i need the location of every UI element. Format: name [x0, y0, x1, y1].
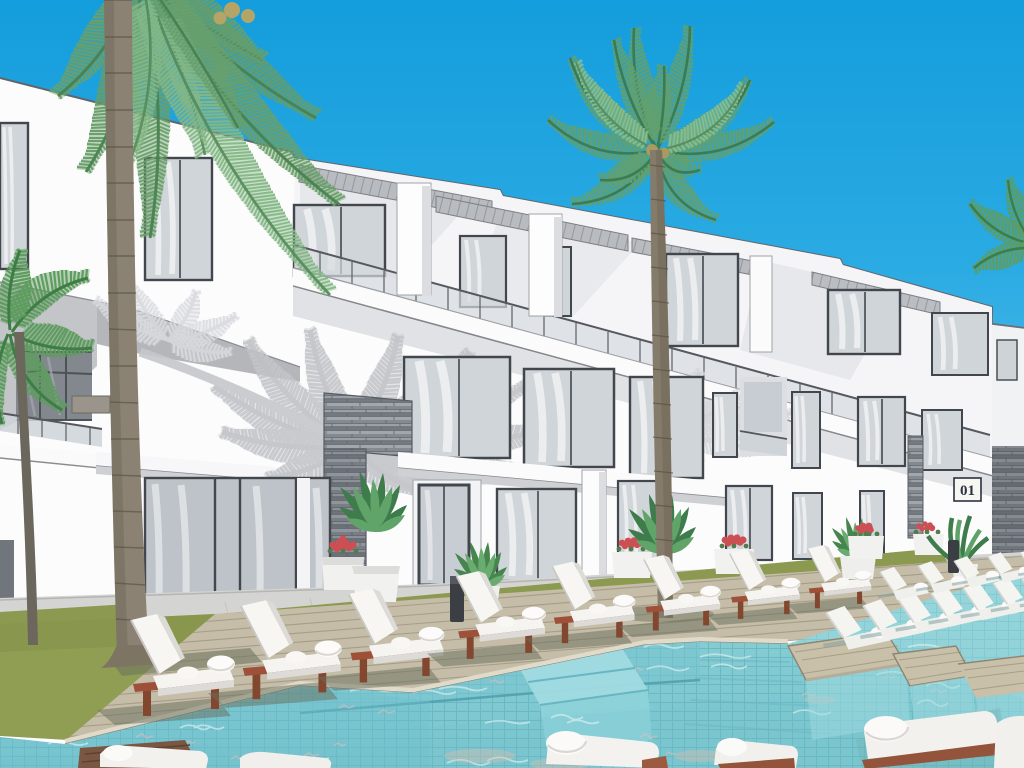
svg-text:01: 01: [960, 483, 975, 499]
